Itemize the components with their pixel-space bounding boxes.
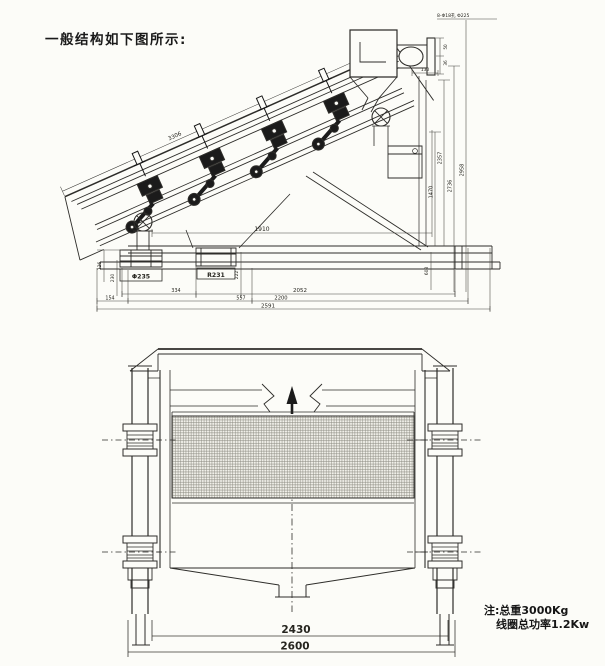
dim-126: 126 [97, 262, 103, 271]
dim-incline-length: 3306 [167, 131, 183, 142]
note-line-1: 注:总重3000Kg [484, 604, 589, 618]
dim-2736: 2736 [448, 180, 454, 193]
dim-334: 334 [171, 288, 180, 294]
hopper-lip [130, 349, 450, 371]
dim-36: 36 [443, 60, 448, 66]
dim-50: 50 [443, 44, 448, 50]
dim-2958: 2958 [460, 164, 466, 177]
dim-1910: 1910 [254, 226, 269, 233]
dim-2600: 2600 [280, 641, 309, 653]
electrical-box [388, 146, 422, 178]
technical-drawing-page: 一般结构如下图所示: [0, 0, 605, 666]
dim-222: 222 [234, 271, 240, 280]
mesh-screen-panel [172, 412, 414, 503]
lower-hopper [170, 568, 415, 597]
front-view [102, 349, 483, 657]
note-line-2: 线圈总功率1.2Kw [496, 618, 589, 632]
dim-2357: 2357 [438, 152, 444, 165]
boxed-label-left-foot: Φ235 [132, 274, 150, 281]
front-view-dim-labels: 2430 2600 [280, 624, 310, 653]
dim-1470: 1470 [429, 186, 435, 199]
dim-2200: 2200 [274, 296, 287, 302]
dim-130: 130 [421, 67, 430, 73]
dim-230: 230 [110, 274, 116, 283]
hole-spec-note: 8-Φ18孔 Φ225 [437, 12, 470, 19]
pivot-right-icon [372, 108, 390, 126]
dim-608: 608 [424, 267, 430, 276]
dim-2591: 2591 [261, 304, 275, 310]
drawing-canvas: 3306 [0, 0, 605, 666]
mount-bracket [397, 38, 435, 75]
dim-2052: 2052 [293, 288, 307, 294]
dimension-lines [97, 19, 497, 312]
dim-2430: 2430 [281, 624, 310, 636]
feed-box [350, 30, 397, 112]
dim-557: 557 [236, 296, 245, 302]
discharge-spout-foot [186, 194, 290, 279]
dim-154: 154 [105, 296, 114, 302]
side-view: 3306 [49, 19, 500, 312]
spec-note: 注:总重3000Kg 线圈总功率1.2Kw [484, 604, 589, 632]
boxed-label-spout: R231 [207, 272, 225, 279]
